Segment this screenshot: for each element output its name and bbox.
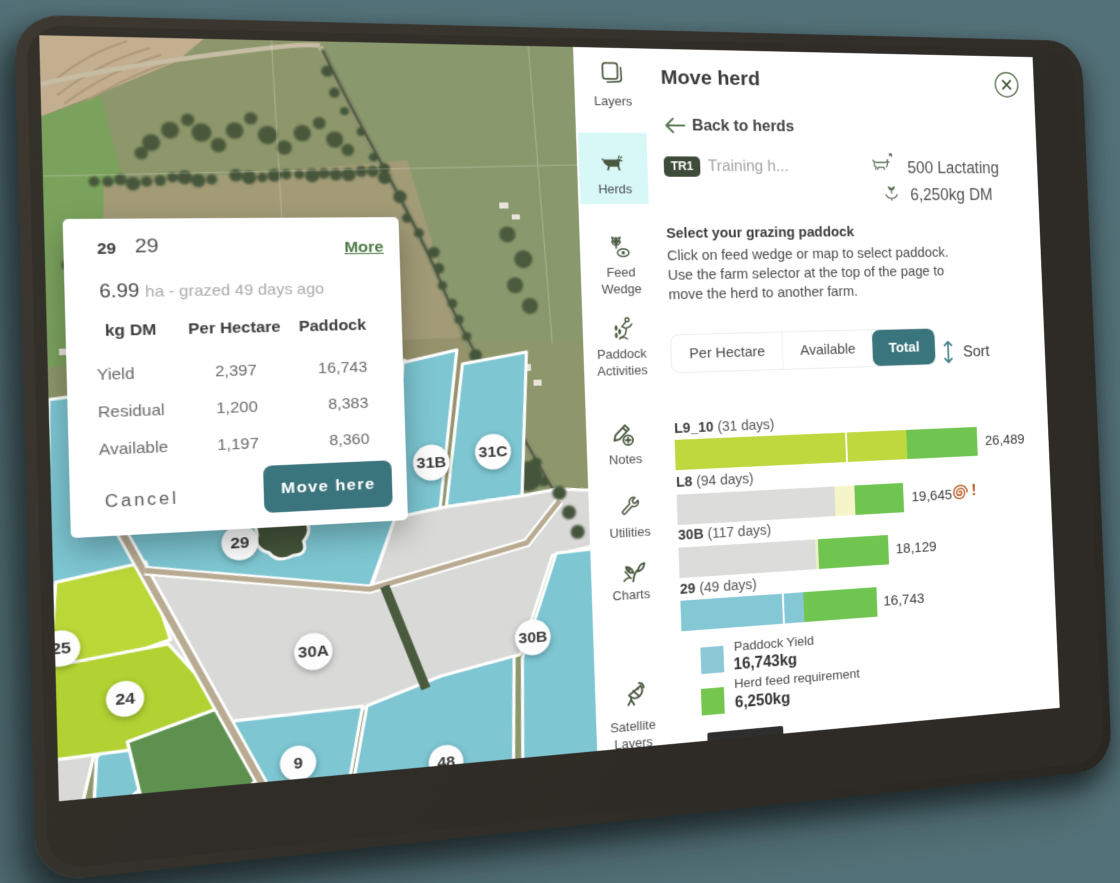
svg-text:30B: 30B — [518, 627, 547, 647]
svg-text:31B: 31B — [416, 453, 446, 472]
svg-text:24: 24 — [115, 689, 136, 710]
svg-text:9: 9 — [293, 753, 303, 773]
svg-text:30A: 30A — [298, 641, 330, 662]
svg-text:29: 29 — [230, 533, 250, 553]
svg-text:31C: 31C — [478, 442, 508, 461]
